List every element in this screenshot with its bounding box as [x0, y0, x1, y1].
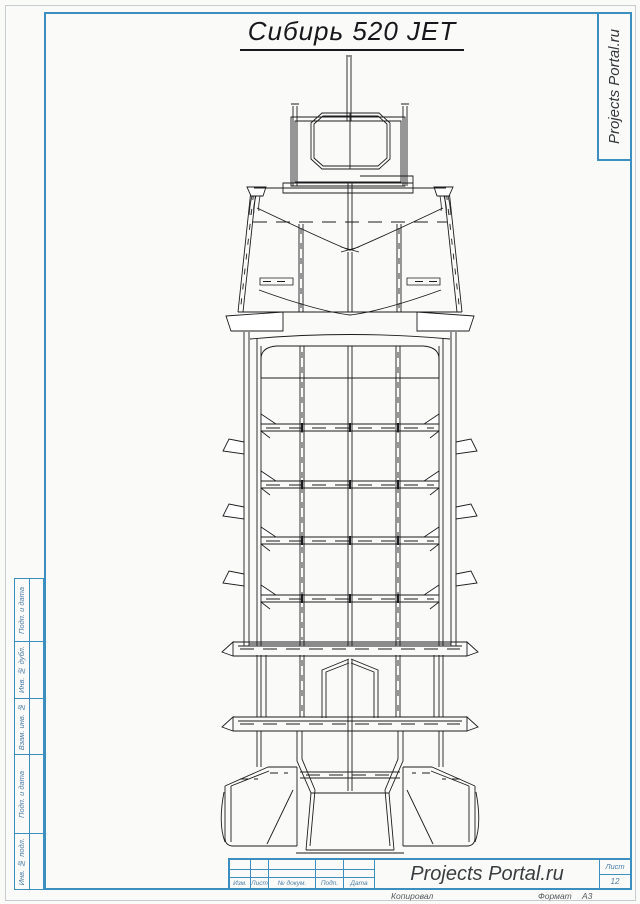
footer-copied-label: Копировал [391, 891, 433, 901]
strip-cell-inv-dubl: Инв. № дубл. [15, 641, 43, 698]
footer-format-value: А3 [582, 891, 592, 901]
strip-cell-label: Инв. № подл. [15, 834, 30, 889]
strip-cell-blank [30, 579, 44, 641]
sheet-label: Лист [600, 860, 630, 874]
footer-format-label: Формат [538, 891, 572, 901]
strip-cell-inv-podl: Инв. № подл. [15, 833, 43, 889]
org-name: Projects Portal.ru [410, 863, 563, 886]
revision-cell-empty [230, 870, 250, 877]
strip-cell-vzam-inv: Взам. инв. № [15, 698, 43, 754]
revision-cell-empty [230, 860, 250, 869]
strip-cell-blank [30, 699, 44, 754]
revision-col-izm: Изм. [230, 878, 250, 888]
title-block: Изм. Лист № докум. Подп. Дата Projects P… [228, 858, 632, 890]
revision-col-list: Лист [251, 878, 268, 888]
revision-cell-empty [316, 860, 343, 869]
revision-col-data: Дата [344, 878, 374, 888]
drawing-sheet: Сибирь 520 JET Projects Portal.ru [0, 0, 640, 904]
strip-cell-blank [30, 755, 44, 833]
revision-cell-empty [344, 870, 374, 877]
revision-cell-empty [344, 860, 374, 869]
revision-table: Изм. Лист № докум. Подп. Дата [230, 860, 374, 888]
revision-cell-empty [251, 870, 268, 877]
strip-cell-label: Подп. и дата [15, 755, 30, 833]
revision-cell-empty [269, 870, 315, 877]
boat-hull-wireframe-drawing [0, 0, 640, 904]
left-attribute-strip: Подп. и дата Инв. № дубл. Взам. инв. № П… [14, 578, 44, 890]
strip-cell-podp-i-data-2: Подп. и дата [15, 754, 43, 833]
sheet-number: 12 [600, 875, 630, 889]
strip-cell-label: Подп. и дата [15, 579, 30, 641]
revision-cell-empty [269, 860, 315, 869]
revision-col-podp: Подп. [316, 878, 343, 888]
revision-col-docnum: № докум. [269, 878, 315, 888]
strip-cell-label: Взам. инв. № [15, 699, 30, 754]
strip-cell-blank [30, 642, 44, 698]
strip-cell-podp-i-data-1: Подп. и дата [15, 579, 43, 641]
strip-cell-label: Инв. № дубл. [15, 642, 30, 698]
sheet-number-cell: Лист 12 [600, 860, 630, 888]
strip-cell-blank [30, 834, 44, 889]
revision-cell-empty [251, 860, 268, 869]
revision-cell-empty [316, 870, 343, 877]
org-name-cell: Projects Portal.ru [375, 860, 599, 888]
